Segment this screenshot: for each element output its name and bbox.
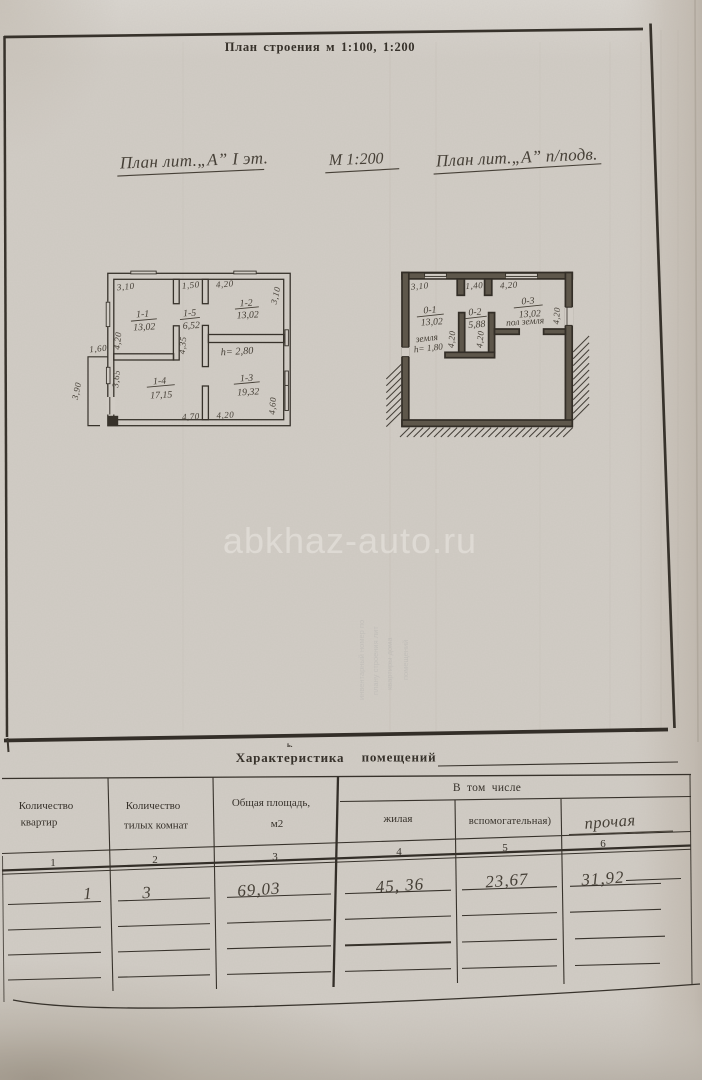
svg-text:13,02: 13,02 <box>420 316 443 329</box>
svg-text:17,15: 17,15 <box>150 389 173 401</box>
svg-text:3,10: 3,10 <box>409 280 429 292</box>
svg-text:h= 2,80: h= 2,80 <box>220 346 254 359</box>
svg-text:инвентарный номер по: инвентарный номер по <box>357 620 366 700</box>
svg-text:4,35: 4,35 <box>177 336 189 355</box>
svg-text:вспомогательная): вспомогательная) <box>469 816 552 827</box>
svg-text:3,65: 3,65 <box>110 369 122 389</box>
svg-text:1,40: 1,40 <box>465 280 483 291</box>
svg-text:4,20: 4,20 <box>446 330 458 348</box>
svg-text:1: 1 <box>50 857 56 869</box>
svg-text:1: 1 <box>83 884 93 903</box>
svg-text:тилых комнат: тилых комнат <box>124 820 188 832</box>
svg-text:плану строения лит: плану строения лит <box>371 626 380 695</box>
svg-text:помещений: помещений <box>362 750 437 765</box>
svg-text:45, 36: 45, 36 <box>375 874 425 896</box>
svg-text:В том числе: В том числе <box>453 782 521 794</box>
svg-text:1,60: 1,60 <box>89 343 108 355</box>
svg-text:13,02: 13,02 <box>133 321 156 333</box>
svg-text:Количество: Количество <box>19 800 74 812</box>
svg-text:4,60: 4,60 <box>267 397 278 415</box>
svg-text:5,88: 5,88 <box>468 319 486 331</box>
svg-text:6,52: 6,52 <box>182 320 200 332</box>
svg-text:Общая площадь,: Общая площадь, <box>232 797 311 809</box>
svg-text:3,10: 3,10 <box>115 281 135 293</box>
svg-text:4,20: 4,20 <box>551 307 562 325</box>
svg-text:жилая: жилая <box>383 813 413 825</box>
svg-text:М 1:200: М 1:200 <box>328 150 384 169</box>
svg-text:квартиры дома: квартиры дома <box>385 637 394 690</box>
svg-text:квартир: квартир <box>21 817 58 829</box>
svg-text:1-1: 1-1 <box>136 309 150 321</box>
svg-text:4,20: 4,20 <box>215 278 234 290</box>
svg-text:прочая: прочая <box>584 810 636 833</box>
svg-text:м2: м2 <box>271 818 283 830</box>
svg-text:Количество: Количество <box>126 800 181 812</box>
svg-text:ь.: ь. <box>287 741 293 749</box>
svg-text:13,02: 13,02 <box>236 309 259 321</box>
svg-text:помещений: помещений <box>401 640 410 680</box>
svg-text:19,32: 19,32 <box>237 386 260 398</box>
svg-text:4,20: 4,20 <box>500 279 518 290</box>
svg-text:4,20: 4,20 <box>474 330 486 348</box>
svg-text:План строения м 1:100, 1:200: План строения м 1:100, 1:200 <box>225 40 415 54</box>
svg-text:1,50: 1,50 <box>181 279 200 291</box>
svg-text:4,70: 4,70 <box>182 411 200 422</box>
svg-text:4,20: 4,20 <box>112 331 124 350</box>
svg-text:Характеристика: Характеристика <box>236 750 345 765</box>
svg-text:4,20: 4,20 <box>216 410 234 421</box>
svg-text:abkhaz-auto.ru: abkhaz-auto.ru <box>223 520 477 561</box>
